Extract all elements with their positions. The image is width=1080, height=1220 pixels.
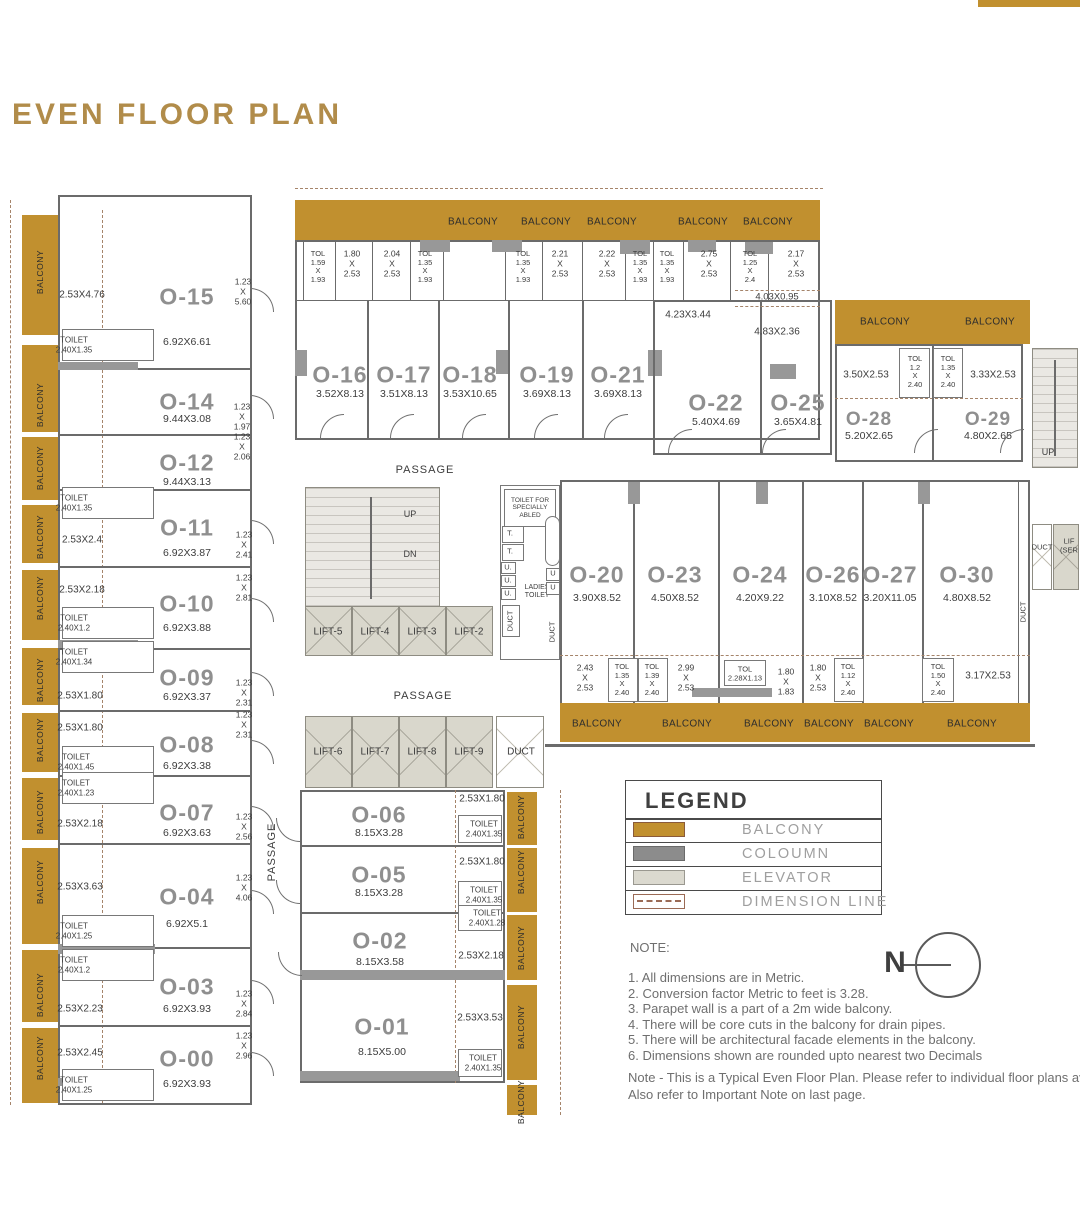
- dim-label: 2.75 X 2.53: [701, 249, 718, 278]
- dn-label: DN: [404, 549, 417, 559]
- legend-divider: [625, 818, 882, 820]
- duct-label: DUCT: [507, 747, 535, 758]
- dim-label: 2.22 X 2.53: [599, 249, 616, 278]
- lift-label: LIFT-2: [455, 627, 484, 638]
- unit-id: O-08: [159, 732, 214, 759]
- wall: [58, 434, 252, 436]
- dim-label: 1.23 X 1.97: [234, 402, 251, 431]
- wall: [760, 300, 762, 455]
- door-arc: [250, 806, 274, 830]
- note-item: 4. There will be core cuts in the balcon…: [628, 1017, 946, 1032]
- unit-dim: 4.20X9.22: [736, 592, 784, 604]
- specially-abled-label: TOILET FOR SPECIALLY ABLED: [511, 497, 549, 519]
- dim-label: 2.04 X 2.53: [384, 249, 401, 278]
- service-lift: [1053, 524, 1079, 590]
- unit-dim: 6.92X3.63: [163, 827, 211, 839]
- balcony-label: BALCONY: [516, 795, 526, 839]
- unit-id: O-09: [159, 665, 214, 692]
- legend-swatch-column: [633, 846, 685, 861]
- dim-label: 3.33X2.53: [970, 370, 1016, 381]
- note-item: 6. Dimensions shown are rounded upto nea…: [628, 1048, 982, 1063]
- balcony-label: BALCONY: [516, 926, 526, 970]
- balcony-label: BALCONY: [864, 719, 914, 730]
- toilet-label: TOILET 2.40X1.34: [56, 647, 92, 666]
- dim-label: 2.43 X 2.53: [577, 663, 594, 692]
- dim-label: 3.50X2.53: [843, 370, 889, 381]
- dimension-line: [560, 790, 561, 1115]
- lift-label: LIFT-9: [455, 747, 484, 758]
- dim-label: 1.80 X 1.83: [778, 667, 795, 696]
- unit-id: O-12: [159, 450, 214, 477]
- toilet-label: TOL 1.50 X 2.40: [931, 663, 946, 698]
- toilet-label: TOILET 2.40X1.2: [58, 613, 90, 632]
- toilet-stall-label: T.: [507, 530, 513, 539]
- balcony-label: BALCONY: [35, 576, 45, 620]
- door-arc: [250, 288, 274, 312]
- lift-label: LIFT-7: [361, 747, 390, 758]
- unit-id: O-22: [688, 390, 743, 417]
- toilet-label: TOILET 2.40X1.28: [469, 908, 505, 927]
- wall: [718, 480, 720, 705]
- lift-label: LIFT-8: [408, 747, 437, 758]
- unit-id: O-18: [442, 362, 497, 389]
- column-block: [58, 362, 138, 370]
- dim-label: 2.53X1.80: [459, 794, 505, 805]
- unit-dim: 6.92X3.88: [163, 622, 211, 634]
- balcony-label: BALCONY: [35, 446, 45, 490]
- balcony-label: BALCONY: [744, 719, 794, 730]
- column-block: [300, 1071, 460, 1081]
- unit-dim: 6.92X3.93: [163, 1078, 211, 1090]
- wall: [410, 240, 411, 300]
- unit-id: O-04: [159, 884, 214, 911]
- north-label: N: [884, 946, 906, 980]
- wall: [730, 240, 731, 300]
- toilet-label: TOILET 2.40X1.25: [56, 921, 92, 940]
- toilet-label: TOL 1.35 X 2.40: [615, 663, 630, 698]
- dimension-line: [455, 790, 456, 1083]
- unit-dim: 3.90X8.52: [573, 592, 621, 604]
- wall: [58, 710, 252, 712]
- unit-id: O-21: [590, 362, 645, 389]
- dim-label: 4.83X2.36: [754, 327, 800, 338]
- balcony-label: BALCONY: [516, 1080, 526, 1124]
- dim-label: 2.53X3.53: [457, 1013, 503, 1024]
- door-arc: [250, 1052, 274, 1076]
- wall: [802, 480, 804, 705]
- column-block: [692, 688, 772, 697]
- door-arc: [250, 598, 274, 622]
- unit-id: O-11: [160, 515, 214, 542]
- door-arc: [250, 740, 274, 764]
- dim-label: 1.23 X 5.60: [235, 277, 252, 306]
- service-lift-label: LIF (SER: [1060, 537, 1078, 554]
- door-arc: [250, 520, 274, 544]
- balcony-label: BALCONY: [35, 250, 45, 294]
- dim-label: 2.53X2.18: [59, 585, 105, 596]
- balcony-label: BALCONY: [804, 719, 854, 730]
- duct-label: DUCT: [549, 622, 558, 643]
- door-arc: [276, 880, 300, 904]
- unit-dim: 3.51X8.13: [380, 388, 428, 400]
- dim-label: 2.53X4.76: [59, 290, 105, 301]
- wall: [372, 240, 373, 300]
- note-item: 2. Conversion factor Metric to feet is 3…: [628, 986, 869, 1001]
- unit-dim: 3.10X8.52: [809, 592, 857, 604]
- balcony-label: BALCONY: [35, 1036, 45, 1080]
- unit-id: O-10: [159, 591, 214, 618]
- unit-id: O-19: [519, 362, 574, 389]
- lift-label: LIFT-4: [361, 627, 390, 638]
- dimension-line: [10, 200, 11, 1105]
- urinal-label: U: [550, 584, 555, 593]
- legend-label: COLOUMN: [742, 846, 830, 862]
- dim-label: 2.17 X 2.53: [788, 249, 805, 278]
- unit-dim: 6.92X3.37: [163, 691, 211, 703]
- unit-dim: 3.20X11.05: [864, 592, 917, 604]
- unit-id: O-17: [376, 362, 431, 389]
- balcony-label: BALCONY: [35, 515, 45, 559]
- toilet-label: TOL 1.12 X 2.40: [841, 663, 856, 698]
- wall: [300, 845, 505, 847]
- unit-dim: 5.40X4.69: [692, 416, 740, 428]
- floor-plan-canvas: EVEN FLOOR PLAN BALCONY BALCONY BALCONY …: [0, 0, 1080, 1220]
- toilet-stall: [502, 544, 524, 561]
- legend-label: BALCONY: [742, 822, 825, 838]
- note-footer: Also refer to Important Note on last pag…: [628, 1087, 866, 1102]
- toilet-label: TOL 1.35 X 1.93: [633, 250, 648, 285]
- unit-dim: 9.44X3.08: [163, 413, 211, 425]
- legend-swatch-balcony: [633, 822, 685, 837]
- stair-rail: [370, 497, 372, 599]
- balcony-label: BALCONY: [35, 718, 45, 762]
- dim-label: 2.21 X 2.53: [552, 249, 569, 278]
- toilet-stall-label: T.: [507, 548, 513, 557]
- wall: [438, 300, 440, 440]
- toilet-label: TOL 1.25 X 2.4: [743, 250, 758, 285]
- notes-heading: NOTE:: [630, 940, 670, 955]
- toilet-label: TOILET 2.40X1.23: [58, 778, 94, 797]
- duct-shaft: [1032, 524, 1052, 590]
- wall: [683, 240, 684, 300]
- stair-rail: [1054, 360, 1056, 456]
- lift-label: LIFT-3: [408, 627, 437, 638]
- dim-label: 2.53X3.63: [57, 882, 103, 893]
- toilet-label: TOILET 2.40X1.35: [466, 819, 502, 838]
- note-item: 3. Parapet wall is a part of a 2m wide b…: [628, 1001, 892, 1016]
- door-arc: [250, 890, 274, 914]
- legend-divider: [625, 890, 882, 891]
- unit-dim: 4.80X8.52: [943, 592, 991, 604]
- dim-label: 2.53X2.23: [57, 1004, 103, 1015]
- unit-dim: 4.50X8.52: [651, 592, 699, 604]
- door-arc: [278, 952, 302, 976]
- urinal-label: U.: [504, 590, 512, 599]
- balcony-label: BALCONY: [587, 217, 637, 228]
- legend-swatch-elevator: [633, 870, 685, 885]
- toilet-label: TOL 1.35 X 2.40: [941, 355, 956, 390]
- urinal-label: U: [550, 570, 555, 579]
- balcony-label: BALCONY: [35, 383, 45, 427]
- column-block: [918, 482, 930, 504]
- balcony-label: BALCONY: [516, 1005, 526, 1049]
- page-title: EVEN FLOOR PLAN: [12, 98, 342, 132]
- balcony-label: BALCONY: [678, 217, 728, 228]
- wall: [653, 240, 654, 300]
- wall: [58, 843, 252, 845]
- unit-id: O-26: [805, 562, 860, 589]
- column-block: [496, 350, 508, 374]
- balcony-label: BALCONY: [662, 719, 712, 730]
- wall: [335, 240, 336, 300]
- toilet-label: TOL 1.59 X 1.93: [311, 250, 326, 285]
- balcony-label: BALCONY: [521, 217, 571, 228]
- door-arc: [276, 818, 300, 842]
- unit-id: O-06: [351, 802, 406, 829]
- balcony-label: BALCONY: [743, 217, 793, 228]
- unit-id: O-05: [351, 862, 406, 889]
- passage-label: PASSAGE: [394, 690, 453, 702]
- unit-id: O-30: [939, 562, 994, 589]
- unit-dim: 3.69X8.13: [594, 388, 642, 400]
- wall: [582, 300, 584, 440]
- unit-id: O-24: [732, 562, 787, 589]
- toilet-label: TOILET 2.40X1.35: [56, 335, 92, 354]
- duct-label: DUCT: [507, 611, 516, 632]
- door-arc: [250, 980, 274, 1004]
- dim-label: 4.03X0.95: [755, 293, 798, 304]
- legend-divider: [625, 866, 882, 867]
- door-arc: [250, 672, 274, 696]
- unit-dim: 5.20X2.65: [845, 430, 893, 442]
- toilet-stall: [502, 526, 524, 543]
- toilet-label: TOILET 2.40X1.25: [56, 1075, 92, 1094]
- north-compass-needle: [903, 964, 951, 966]
- balcony-label: BALCONY: [516, 850, 526, 894]
- toilet-label: TOILET 2.40X1.35: [56, 493, 92, 512]
- wash-basins: [545, 516, 560, 566]
- unit-id: O-16: [312, 362, 367, 389]
- wall: [58, 1025, 252, 1027]
- column-block: [300, 970, 460, 980]
- dim-label: 2.53X1.80: [57, 691, 103, 702]
- unit-id: O-00: [159, 1046, 214, 1073]
- toilet-label: TOL 1.35 X 1.93: [660, 250, 675, 285]
- unit-dim: 8.15X5.00: [358, 1046, 406, 1058]
- toilet-label: TOL 2.28X1.13: [728, 665, 762, 682]
- unit-dim: 8.15X3.28: [355, 827, 403, 839]
- legend-divider: [625, 842, 882, 843]
- wall: [1018, 480, 1019, 705]
- dimension-line-sample: [637, 900, 681, 902]
- unit-id: O-29: [965, 409, 1011, 431]
- toilet-label: TOILET 2.40X1.35: [465, 1053, 501, 1072]
- legend-label: DIMENSION LINE: [742, 894, 888, 910]
- unit-dim: 3.65X4.81: [774, 416, 822, 428]
- urinal-label: U.: [504, 564, 512, 573]
- unit-dim: 6.92X3.87: [163, 547, 211, 559]
- dim-label: 1.23 X 2.31: [236, 710, 253, 739]
- unit-id: O-27: [862, 562, 917, 589]
- wall: [58, 566, 252, 568]
- unit-dim: 8.15X3.28: [355, 887, 403, 899]
- unit-dim: 6.92X3.38: [163, 760, 211, 772]
- stairs: [305, 487, 440, 609]
- wall: [545, 744, 1035, 747]
- dim-label: 1.80 X 2.53: [810, 663, 827, 692]
- toilet-label: TOL 1.35 X 1.93: [516, 250, 531, 285]
- unit-id: O-07: [159, 800, 214, 827]
- note-item: 1. All dimensions are in Metric.: [628, 970, 804, 985]
- balcony-label: BALCONY: [35, 790, 45, 834]
- toilet-label: TOL 1.39 X 2.40: [645, 663, 660, 698]
- toilet-label: TOILET 2.40X1.2: [58, 955, 90, 974]
- dim-label: 2.53X1.80: [57, 723, 103, 734]
- wall: [542, 240, 543, 300]
- unit-dim: 6.92X6.61: [163, 336, 211, 348]
- urinal-label: U.: [504, 577, 512, 586]
- unit-id: O-28: [846, 409, 892, 431]
- up-label: UP: [1042, 447, 1055, 457]
- lift-label: LIFT-5: [314, 627, 343, 638]
- unit-id: O-01: [354, 1014, 409, 1041]
- dimension-line: [735, 306, 820, 307]
- balcony-label: BALCONY: [572, 719, 622, 730]
- balcony-label: BALCONY: [35, 973, 45, 1017]
- toilet-label: TOL 1.2 X 2.40: [908, 355, 923, 390]
- duct-label: DUCT: [1032, 544, 1053, 553]
- wall: [303, 240, 304, 300]
- unit-dim: 8.15X3.58: [356, 956, 404, 968]
- dim-label: 4.23X3.44: [665, 310, 711, 321]
- toilet-label: TOILET 2.40X1.45: [58, 752, 94, 771]
- unit-id: O-20: [569, 562, 624, 589]
- unit-dim: 3.53X10.65: [443, 388, 497, 400]
- up-label: UP: [404, 509, 417, 519]
- dim-label: 2.53X2.18: [458, 951, 504, 962]
- unit-id: O-02: [352, 928, 407, 955]
- legend-title: LEGEND: [645, 788, 749, 814]
- lift-label: LIFT-6: [314, 747, 343, 758]
- unit-dim: 6.92X5.1: [166, 918, 208, 930]
- balcony-label: BALCONY: [448, 217, 498, 228]
- dim-label: 2.53X2.4: [62, 535, 102, 546]
- wall: [582, 240, 583, 300]
- note-footer: Note - This is a Typical Even Floor Plan…: [628, 1070, 1080, 1085]
- dimension-line: [560, 655, 1030, 656]
- unit-id: O-25: [770, 390, 825, 417]
- column-block: [295, 350, 307, 376]
- unit-id: O-14: [159, 389, 214, 416]
- unit-id: O-23: [647, 562, 702, 589]
- unit-id: O-03: [159, 974, 214, 1001]
- unit-dim: 9.44X3.13: [163, 476, 211, 488]
- balcony-label: BALCONY: [947, 719, 997, 730]
- toilet-label: TOILET 2.40X1.35: [466, 885, 502, 904]
- dim-label: 2.99 X 2.53: [678, 663, 695, 692]
- column-block: [455, 970, 505, 980]
- door-arc: [250, 395, 274, 419]
- balcony-label: BALCONY: [860, 317, 910, 328]
- unit-dim: 3.52X8.13: [316, 388, 364, 400]
- unit-dim: 6.92X3.93: [163, 1003, 211, 1015]
- column-block: [628, 482, 640, 504]
- dim-label: 1.23 X 2.06: [234, 432, 251, 461]
- column-block: [770, 364, 796, 379]
- passage-label: PASSAGE: [396, 464, 455, 476]
- dim-label: 1.80 X 2.53: [344, 249, 361, 278]
- dimension-line: [835, 398, 1023, 399]
- balcony-label: BALCONY: [35, 860, 45, 904]
- unit-dim: 3.69X8.13: [523, 388, 571, 400]
- balcony-label: BALCONY: [965, 317, 1015, 328]
- top-right-decor: [978, 0, 1080, 7]
- dimension-line: [295, 188, 823, 189]
- legend-label: ELEVATOR: [742, 870, 833, 886]
- column-block: [756, 482, 768, 504]
- dim-label: 2.53X2.45: [57, 1048, 103, 1059]
- unit-id: O-15: [159, 284, 214, 311]
- wall: [508, 300, 510, 440]
- legend-swatch-dimension-line: [633, 894, 685, 909]
- passage-label: PASSAGE: [266, 823, 278, 882]
- dim-label: 3.17X2.53: [965, 671, 1011, 682]
- balcony-label: BALCONY: [35, 658, 45, 702]
- dim-label: 2.53X2.18: [57, 819, 103, 830]
- toilet-label: TOL 1.35 X 1.93: [418, 250, 433, 285]
- note-item: 5. There will be architectural facade el…: [628, 1032, 976, 1047]
- dim-label: 2.53X1.80: [459, 857, 505, 868]
